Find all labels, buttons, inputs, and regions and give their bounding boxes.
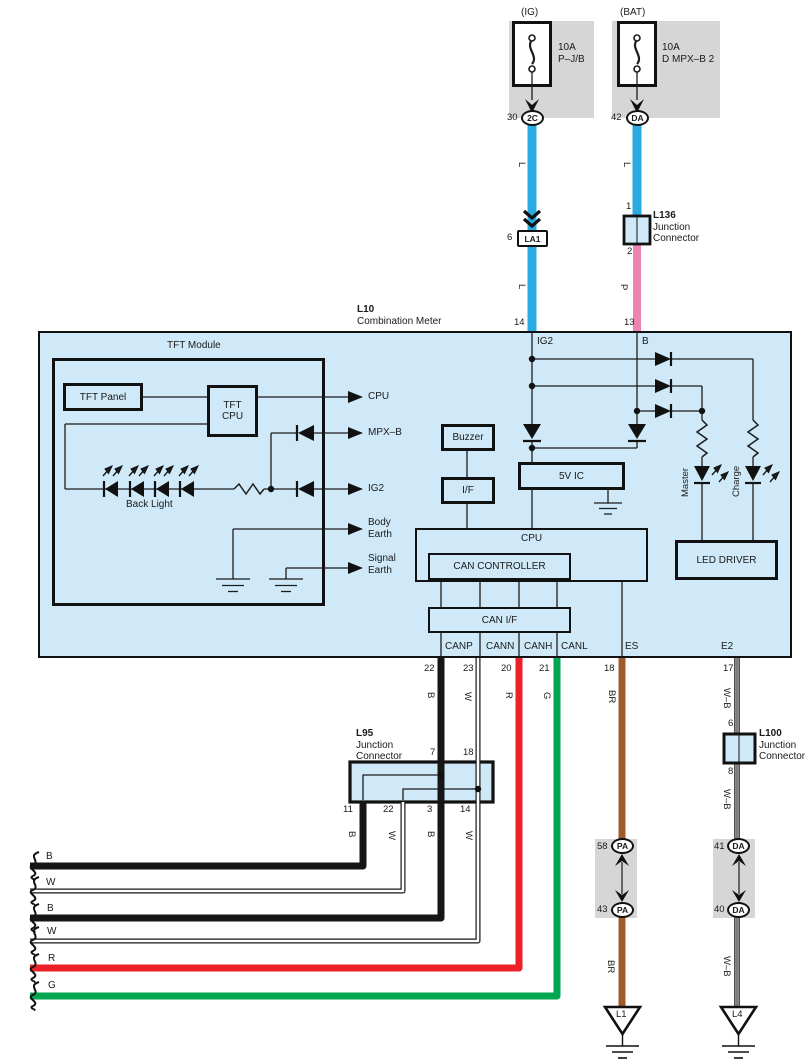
harness-label-w1: W <box>46 877 55 889</box>
conn-ig-pin: 30 <box>507 113 518 123</box>
fuse-ig-rating: 10A <box>558 42 585 54</box>
l95-pin-7: 7 <box>430 748 435 758</box>
bat-circuit-label: (BAT) <box>620 7 645 19</box>
fuse-ig-symbol <box>525 35 539 113</box>
harness-label-b1: B <box>46 851 53 863</box>
da-top-pin: 41 <box>714 842 725 852</box>
arrow-label-signal-earth: Signal Earth <box>368 553 396 576</box>
da-bot-pin: 40 <box>714 905 725 915</box>
conn-bat-code: DA <box>626 110 649 126</box>
terminal-canp: CANP <box>445 641 473 653</box>
fuse-bat-label: 10A D MPX–B 2 <box>662 42 714 65</box>
da-bot-code: DA <box>727 902 750 918</box>
l95-pin-18: 18 <box>463 748 474 758</box>
l95-pin-11: 11 <box>343 805 353 815</box>
terminal-es: ES <box>625 641 638 653</box>
l95-pin-3: 3 <box>427 805 432 815</box>
conn-ig-code: 2C <box>521 110 544 126</box>
backlight-label: Back Light <box>126 499 173 511</box>
wire-color-p: P <box>618 284 629 290</box>
l95-wire-w2: W <box>463 831 474 840</box>
terminal-canh: CANH <box>524 641 552 653</box>
l95-wire-b2: B <box>425 831 436 837</box>
arrow-label-cpu: CPU <box>368 391 389 403</box>
wire-color-g: G <box>541 692 552 699</box>
cpu-label: CPU <box>521 533 542 545</box>
diode-symbols <box>297 352 671 497</box>
fuse-ig-label: 10A P–J/B <box>558 42 585 65</box>
pa-bot-pin: 43 <box>597 905 608 915</box>
module-arrow-icons <box>348 391 363 574</box>
la1-connector: LA1 <box>517 230 548 247</box>
pin-17: 17 <box>723 664 734 674</box>
fuse-ig-name: P–J/B <box>558 54 585 66</box>
l100-junction-connector <box>724 734 755 763</box>
pa-top-code: PA <box>611 838 634 854</box>
l95-junction-connector <box>350 762 493 802</box>
l95-pin-14: 14 <box>460 805 471 815</box>
l136-junction-connector <box>624 216 650 244</box>
wire-color-wb-mid: W–B <box>721 789 732 810</box>
wire-color-l-right: L <box>621 162 632 167</box>
tft-module-title: TFT Module <box>167 340 221 352</box>
meter-pin-14: 14 <box>514 318 525 328</box>
la1-pin: 6 <box>507 233 512 243</box>
terminal-canl: CANL <box>561 641 588 653</box>
conn-bat-pin: 42 <box>611 113 622 123</box>
wire-color-w: W <box>462 692 473 701</box>
da-top-code: DA <box>727 838 750 854</box>
meter-title: L10 Combination Meter <box>357 304 441 327</box>
pin-23: 23 <box>463 664 474 674</box>
meter-name: Combination Meter <box>357 316 441 328</box>
wiring-svg <box>0 0 809 1062</box>
pin-20: 20 <box>501 664 512 674</box>
terminal-ig2: IG2 <box>537 336 553 348</box>
l100-id: L100 <box>759 728 805 740</box>
wire-color-br: BR <box>606 690 617 703</box>
pin-22: 22 <box>424 664 435 674</box>
wire-color-wb-lower: W–B <box>721 956 732 977</box>
wire-color-r: R <box>503 692 514 699</box>
l95-wire-b1: B <box>346 831 357 837</box>
harness-label-b2: B <box>47 903 54 915</box>
l95-id: L95 <box>356 728 402 740</box>
pa-top-pin: 58 <box>597 842 608 852</box>
harness-break-symbols <box>31 852 39 1010</box>
arrow-label-ig2: IG2 <box>368 483 384 495</box>
pa-bot-code: PA <box>611 902 634 918</box>
l136-pin-top: 1 <box>626 202 631 212</box>
ground-l1-label: L1 <box>616 1010 627 1020</box>
wire-color-l-lower: L <box>516 284 527 289</box>
junction-dots <box>268 356 705 792</box>
terminal-cann: CANN <box>486 641 514 653</box>
wire-color-l-upper: L <box>516 162 527 167</box>
terminal-e2: E2 <box>721 641 733 653</box>
arrow-label-body-earth: Body Earth <box>368 517 392 540</box>
arrow-label-mpxb: MPX–B <box>368 427 402 439</box>
pin-18: 18 <box>604 664 615 674</box>
l100-pin-6: 6 <box>728 719 733 729</box>
ig-circuit-label: (IG) <box>521 7 538 19</box>
fuse-bat-name: D MPX–B 2 <box>662 54 714 66</box>
master-label: Master <box>680 468 691 497</box>
harness-label-g: G <box>48 980 56 992</box>
meter-id: L10 <box>357 304 441 316</box>
wiring-diagram: TFT Panel TFTCPU Buzzer I/F 5V IC CAN CO… <box>0 0 809 1062</box>
l100-label: L100 Junction Connector <box>759 728 805 763</box>
l95-wire-w1: W <box>386 831 397 840</box>
l95-pin-22: 22 <box>383 805 394 815</box>
backlight-led-icons <box>103 466 198 497</box>
l136-pin-bot: 2 <box>627 247 632 257</box>
l136-label: L136 Junction Connector <box>653 210 699 245</box>
harness-label-r: R <box>48 953 55 965</box>
harness-label-w2: W <box>47 926 56 938</box>
pa-da-connector-arrows <box>615 854 746 902</box>
ground-l4-label: L4 <box>732 1010 743 1020</box>
pin-21: 21 <box>539 664 550 674</box>
wire-color-b: B <box>425 692 436 698</box>
l95-label: L95 Junction Connector <box>356 728 402 763</box>
wire-color-wb: W–B <box>721 688 732 709</box>
fuse-bat-rating: 10A <box>662 42 714 54</box>
terminal-b: B <box>642 336 649 348</box>
fuse-bat-symbol <box>630 35 644 113</box>
l136-id: L136 <box>653 210 699 222</box>
wire-color-br-lower: BR <box>605 960 616 973</box>
meter-pin-13: 13 <box>624 318 635 328</box>
l100-pin-8: 8 <box>728 767 733 777</box>
charge-label: Charge <box>731 466 742 497</box>
